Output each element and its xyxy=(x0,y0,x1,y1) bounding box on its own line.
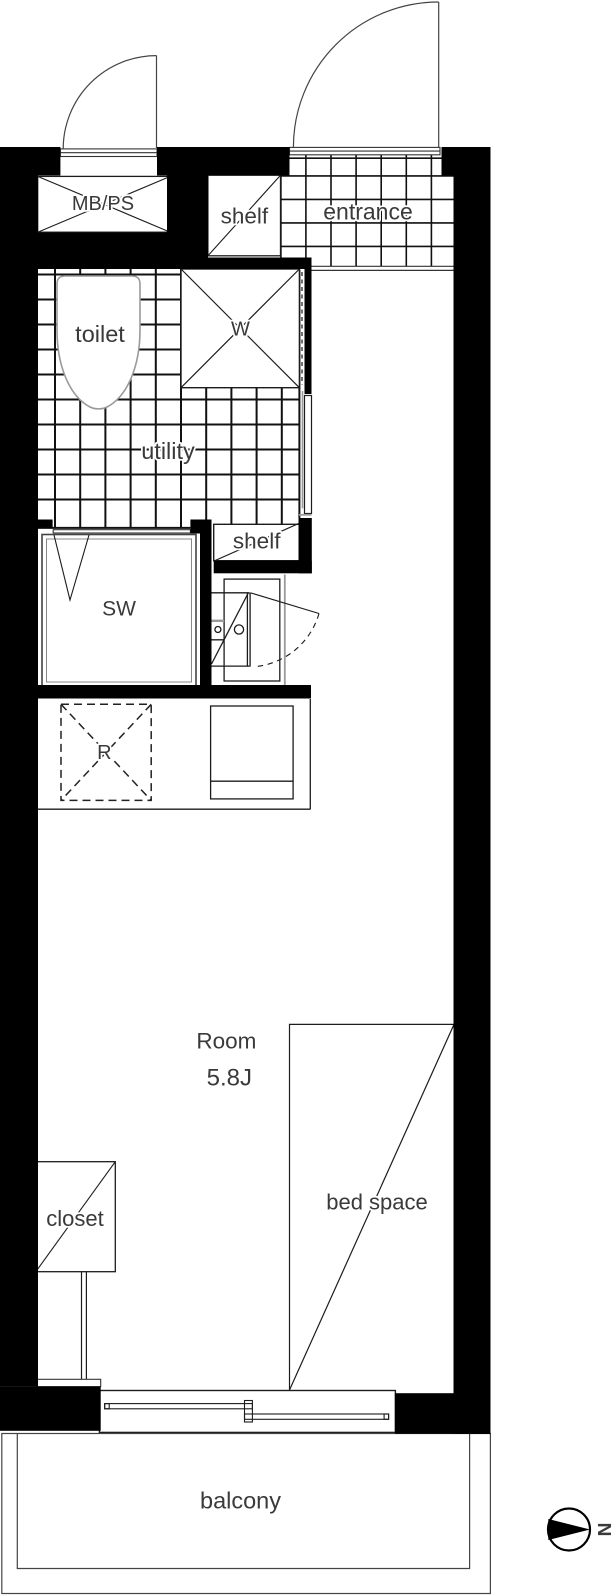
svg-text:MB/PS: MB/PS xyxy=(72,193,134,215)
svg-text:Room: Room xyxy=(196,1029,256,1054)
svg-text:shelf: shelf xyxy=(221,204,269,229)
svg-text:N: N xyxy=(593,1523,611,1537)
svg-text:balcony: balcony xyxy=(200,1488,281,1514)
svg-text:utility: utility xyxy=(141,438,195,464)
svg-text:W: W xyxy=(231,319,250,341)
svg-text:closet: closet xyxy=(46,1206,103,1231)
svg-text:5.8J: 5.8J xyxy=(207,1065,252,1092)
svg-text:SW: SW xyxy=(102,598,136,621)
svg-text:toilet: toilet xyxy=(75,321,125,347)
svg-text:bed space: bed space xyxy=(326,1190,428,1215)
svg-text:R: R xyxy=(97,742,111,764)
svg-text:shelf: shelf xyxy=(233,529,281,554)
svg-text:entrance: entrance xyxy=(323,199,413,225)
